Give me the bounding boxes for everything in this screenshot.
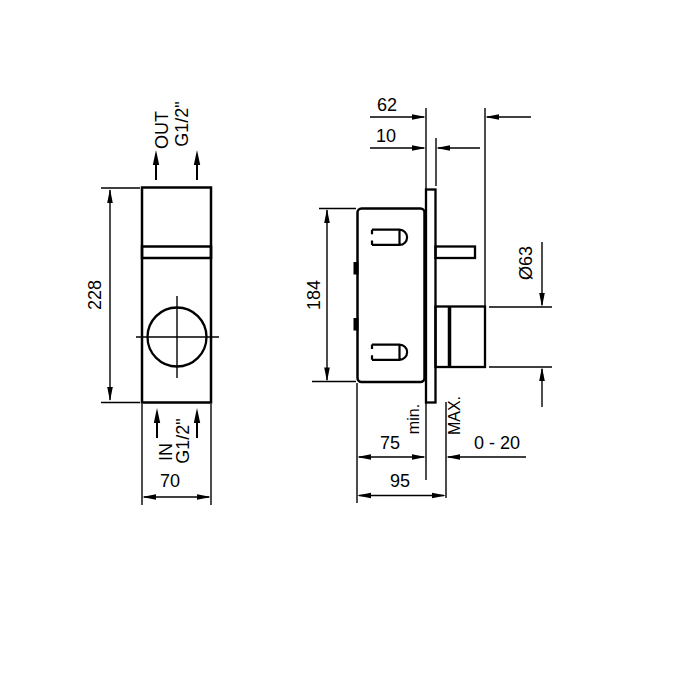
slot-path xyxy=(372,230,407,245)
side-handle-outline xyxy=(436,307,486,368)
arrowhead-up xyxy=(153,150,159,165)
arrowhead-down xyxy=(107,387,113,401)
arrowhead-up xyxy=(194,150,200,165)
arrowhead-up xyxy=(194,408,200,423)
arrowhead-right xyxy=(412,145,426,151)
dimension-10 xyxy=(370,145,480,151)
arrowhead-up xyxy=(154,408,160,423)
inlet-thread-label: G1/2" xyxy=(173,418,193,463)
outlet-label: OUT xyxy=(152,111,172,149)
dimension-95 xyxy=(357,493,446,499)
dim-label-10: 10 xyxy=(376,126,396,146)
max-label: MAX. xyxy=(446,396,463,435)
side-view-labels: 62 10 184 Ø63 min. MAX. 75 0 - 20 95 xyxy=(304,95,536,491)
mounting-slot-top xyxy=(372,230,407,245)
arrowhead-left xyxy=(485,114,499,120)
dim-label-0-20: 0 - 20 xyxy=(474,433,520,453)
body-tab-top xyxy=(354,262,359,275)
front-outlet-band xyxy=(142,247,211,259)
side-plate-outline xyxy=(426,190,436,403)
outlet-arrows xyxy=(153,150,200,180)
body-tab-bottom xyxy=(354,318,359,331)
dimension-228 xyxy=(101,188,140,403)
arrowhead-right xyxy=(412,454,426,460)
min-label: min. xyxy=(405,404,422,434)
arrowhead-down xyxy=(539,293,545,307)
arrowhead-left xyxy=(446,454,460,460)
dim-label-184: 184 xyxy=(304,280,324,310)
technical-drawing-page: 228 OUT G1/2" IN G1/2" 70 xyxy=(0,0,700,700)
dim-label-70: 70 xyxy=(160,471,180,491)
dim-label-75: 75 xyxy=(380,433,400,453)
arrowhead-left xyxy=(357,454,371,460)
dim-label-228: 228 xyxy=(85,280,105,310)
valve-body-outline xyxy=(358,209,425,383)
arrowhead-down xyxy=(324,368,330,382)
arrowhead-left xyxy=(436,145,450,151)
arrowhead-left xyxy=(357,493,371,499)
dim-label-62: 62 xyxy=(377,95,397,115)
dim-label-95: 95 xyxy=(390,471,410,491)
side-outlet-connector xyxy=(436,247,476,259)
outlet-thread-label: G1/2" xyxy=(172,101,192,146)
arrowhead-right xyxy=(432,493,446,499)
arrowhead-left xyxy=(142,494,156,500)
mounting-slot-bottom xyxy=(372,345,407,360)
arrowhead-right xyxy=(412,114,426,120)
dimension-0-20 xyxy=(446,454,526,460)
dimension-62 xyxy=(370,114,531,120)
arrowhead-up xyxy=(539,367,545,381)
arrowhead-up xyxy=(324,209,330,223)
slot-path xyxy=(372,345,407,360)
dim-label-diameter-63: Ø63 xyxy=(516,246,536,280)
dimension-75 xyxy=(357,454,426,460)
arrowhead-up xyxy=(107,189,113,203)
arrowhead-right xyxy=(197,494,211,500)
valve-dimension-drawing: 228 OUT G1/2" IN G1/2" 70 xyxy=(0,0,700,700)
